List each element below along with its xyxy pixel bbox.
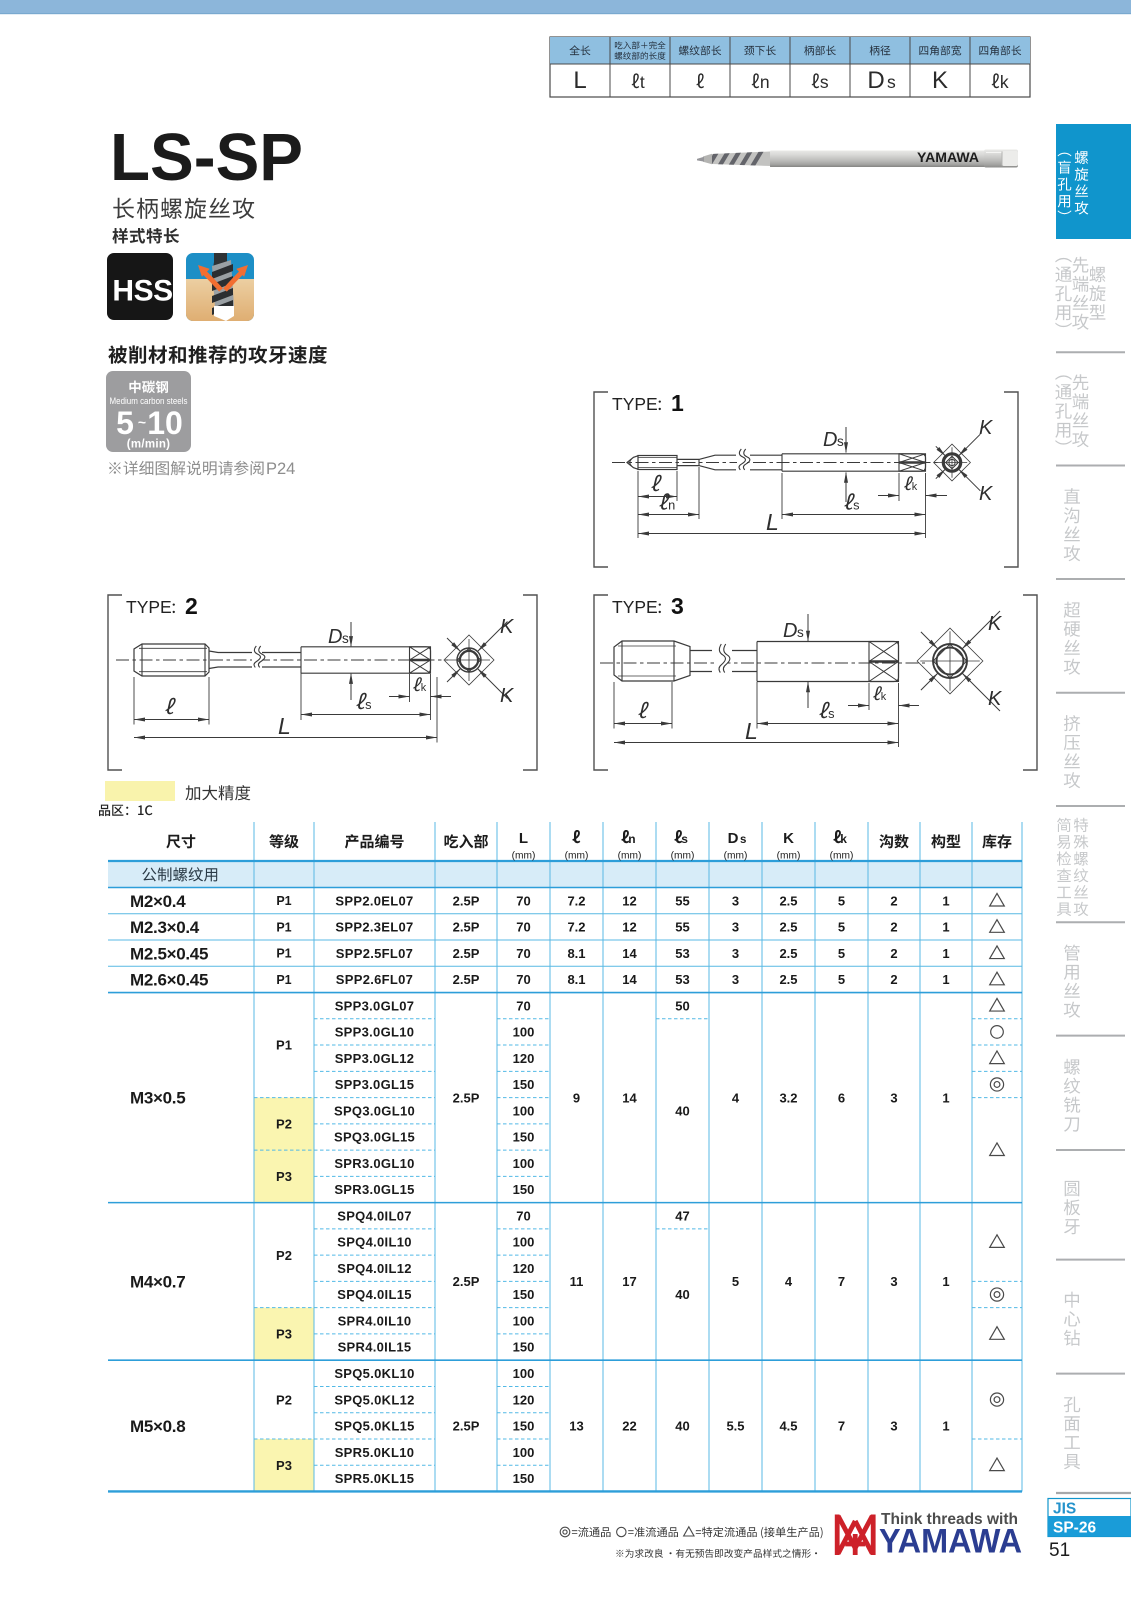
svg-text:SPP3.0GL07: SPP3.0GL07 [335, 998, 415, 1013]
svg-text:P1: P1 [276, 973, 291, 987]
svg-text:100: 100 [513, 1445, 535, 1460]
svg-text:12: 12 [622, 893, 636, 908]
svg-text:3: 3 [890, 1090, 897, 1105]
svg-text:5: 5 [838, 946, 845, 961]
svg-text:10: 10 [147, 405, 183, 441]
svg-text:s: s [820, 72, 829, 92]
svg-text:2.5: 2.5 [779, 972, 797, 987]
svg-text:HSS: HSS [112, 275, 172, 308]
svg-text:L: L [573, 67, 586, 94]
svg-text:9: 9 [573, 1090, 580, 1105]
svg-text:5: 5 [838, 893, 845, 908]
svg-text:5: 5 [116, 405, 134, 441]
svg-text:SPR3.0GL15: SPR3.0GL15 [334, 1182, 414, 1197]
svg-text:SPR3.0GL10: SPR3.0GL10 [334, 1156, 414, 1171]
svg-text:SPQ4.0IL07: SPQ4.0IL07 [337, 1208, 412, 1223]
svg-text:2: 2 [890, 946, 897, 961]
svg-text:K: K [988, 613, 1003, 635]
svg-text:70: 70 [516, 946, 530, 961]
svg-text:s: s [837, 434, 844, 449]
svg-text:~: ~ [138, 414, 146, 430]
svg-text:D: D [728, 830, 739, 847]
svg-text:K: K [932, 67, 948, 94]
svg-text:120: 120 [513, 1051, 535, 1066]
svg-text:2.5: 2.5 [779, 946, 797, 961]
svg-text:YAMAWA: YAMAWA [879, 1523, 1022, 1561]
svg-text:14: 14 [622, 946, 637, 961]
svg-text:17: 17 [622, 1274, 636, 1289]
svg-text:1: 1 [942, 1274, 949, 1289]
svg-text:K: K [783, 830, 794, 847]
svg-text:2.5P: 2.5P [453, 920, 480, 935]
svg-text:P1: P1 [276, 1038, 292, 1053]
svg-text:70: 70 [516, 1208, 530, 1223]
svg-text:150: 150 [513, 1340, 535, 1355]
svg-text:n: n [668, 498, 675, 513]
svg-text:2.5P: 2.5P [453, 1419, 480, 1434]
svg-text:2: 2 [890, 920, 897, 935]
svg-text:3: 3 [732, 893, 739, 908]
svg-text:2.5P: 2.5P [453, 946, 480, 961]
svg-text:P1: P1 [276, 920, 291, 934]
svg-text:P1: P1 [276, 947, 291, 961]
svg-text:2.5P: 2.5P [453, 893, 480, 908]
svg-text:3: 3 [732, 946, 739, 961]
svg-text:100: 100 [513, 1025, 535, 1040]
svg-text:100: 100 [513, 1103, 535, 1118]
svg-text:3.2: 3.2 [779, 1090, 797, 1105]
svg-text:4: 4 [785, 1274, 793, 1289]
svg-text:n: n [628, 832, 635, 846]
svg-text:M2.5×0.45: M2.5×0.45 [130, 944, 208, 963]
svg-text:2.5P: 2.5P [453, 1090, 480, 1105]
svg-text:TYPE: TYPE [612, 394, 658, 414]
svg-text:LS-SP: LS-SP [110, 120, 303, 195]
svg-text:4.5: 4.5 [779, 1419, 797, 1434]
svg-text:L: L [278, 713, 291, 739]
svg-text:53: 53 [675, 946, 689, 961]
svg-text:s: s [797, 625, 804, 640]
svg-text:SPQ4.0IL15: SPQ4.0IL15 [337, 1287, 412, 1302]
svg-text:120: 120 [513, 1392, 535, 1407]
svg-text:L: L [766, 509, 779, 535]
svg-text:P3: P3 [276, 1327, 292, 1342]
svg-text:(mm): (mm) [565, 851, 589, 862]
svg-text:P2: P2 [276, 1117, 292, 1132]
svg-text:SPR4.0IL15: SPR4.0IL15 [338, 1340, 412, 1355]
svg-text:M2.6×0.45: M2.6×0.45 [130, 971, 208, 990]
svg-text:70: 70 [516, 920, 530, 935]
svg-text:SPQ3.0GL15: SPQ3.0GL15 [334, 1130, 415, 1145]
svg-text:2: 2 [890, 972, 897, 987]
svg-text:s: s [740, 834, 746, 846]
svg-text:1: 1 [671, 390, 684, 416]
svg-text:2.5P: 2.5P [453, 1274, 480, 1289]
svg-text:2.5: 2.5 [779, 893, 797, 908]
svg-text:51: 51 [1049, 1540, 1070, 1561]
svg-text:K: K [979, 417, 994, 439]
svg-text:53: 53 [675, 972, 689, 987]
svg-text:(mm): (mm) [777, 851, 801, 862]
svg-text:L: L [519, 830, 528, 847]
svg-text:1: 1 [942, 893, 949, 908]
svg-text:47: 47 [675, 1208, 689, 1223]
svg-text:P24: P24 [266, 460, 295, 478]
svg-text:55: 55 [675, 920, 689, 935]
svg-text:n: n [760, 72, 770, 92]
svg-text:70: 70 [516, 972, 530, 987]
svg-text:K: K [988, 688, 1003, 710]
svg-text:SP-26: SP-26 [1053, 1520, 1096, 1537]
svg-text:100: 100 [513, 1366, 535, 1381]
svg-text:s: s [887, 72, 896, 92]
svg-text:150: 150 [513, 1182, 535, 1197]
svg-text:12: 12 [622, 920, 636, 935]
svg-text:TYPE: TYPE [612, 597, 658, 617]
svg-text:2.5: 2.5 [779, 920, 797, 935]
svg-text:s: s [853, 498, 859, 513]
svg-text:3: 3 [890, 1274, 897, 1289]
svg-text:7: 7 [838, 1419, 845, 1434]
svg-text:M2×0.4: M2×0.4 [130, 892, 186, 911]
svg-text:s: s [365, 697, 371, 712]
svg-text:SPR5.0KL10: SPR5.0KL10 [335, 1445, 415, 1460]
svg-text:M2.3×0.4: M2.3×0.4 [130, 918, 200, 937]
svg-text:120: 120 [513, 1261, 535, 1276]
svg-text:SPQ3.0GL10: SPQ3.0GL10 [334, 1103, 415, 1118]
svg-text:P3: P3 [276, 1458, 292, 1473]
svg-text:14: 14 [622, 972, 637, 987]
svg-text:7.2: 7.2 [567, 893, 585, 908]
svg-text:40: 40 [675, 1103, 689, 1118]
svg-text:(mm): (mm) [671, 851, 695, 862]
svg-text:1: 1 [942, 972, 949, 987]
svg-text:JIS: JIS [1053, 1501, 1076, 1518]
svg-text:50: 50 [675, 998, 689, 1013]
svg-text:100: 100 [513, 1156, 535, 1171]
svg-text:TYPE: TYPE [126, 597, 172, 617]
svg-text:SPQ5.0KL10: SPQ5.0KL10 [334, 1366, 414, 1381]
svg-text:13: 13 [569, 1419, 583, 1434]
svg-text:3: 3 [732, 972, 739, 987]
svg-text:k: k [421, 682, 427, 694]
svg-text:SPQ5.0KL12: SPQ5.0KL12 [334, 1392, 414, 1407]
svg-text:M5×0.8: M5×0.8 [130, 1417, 185, 1436]
svg-text:8.1: 8.1 [567, 946, 585, 961]
svg-text:K: K [500, 685, 515, 707]
svg-text:P2: P2 [276, 1392, 292, 1407]
svg-text:SPP3.0GL12: SPP3.0GL12 [335, 1051, 415, 1066]
svg-text:(mm): (mm) [618, 851, 642, 862]
svg-text:6: 6 [838, 1090, 845, 1105]
svg-text:7.2: 7.2 [567, 920, 585, 935]
svg-text:SPP2.6FL07: SPP2.6FL07 [336, 972, 413, 987]
svg-text:SPP2.0EL07: SPP2.0EL07 [335, 893, 413, 908]
svg-text:SPP3.0GL10: SPP3.0GL10 [335, 1025, 415, 1040]
svg-text:D: D [823, 429, 837, 451]
svg-text:2.5P: 2.5P [453, 972, 480, 987]
svg-text:3: 3 [671, 593, 684, 619]
svg-text:YAMAWA: YAMAWA [917, 150, 979, 165]
svg-text:5: 5 [838, 972, 845, 987]
svg-text:150: 150 [513, 1077, 535, 1092]
svg-text:k: k [912, 481, 918, 493]
svg-text:D: D [783, 620, 797, 642]
svg-text:(mm): (mm) [512, 851, 536, 862]
svg-text:1: 1 [942, 1419, 949, 1434]
svg-text:M3×0.5: M3×0.5 [130, 1089, 185, 1108]
svg-text:SPP2.5FL07: SPP2.5FL07 [336, 946, 413, 961]
svg-text:2: 2 [185, 593, 198, 619]
svg-text:40: 40 [675, 1419, 689, 1434]
svg-text:5.5: 5.5 [726, 1419, 744, 1434]
svg-text:22: 22 [622, 1419, 636, 1434]
svg-text:K: K [500, 616, 515, 638]
svg-text:1: 1 [942, 1090, 949, 1105]
svg-text:k: k [1000, 72, 1009, 92]
svg-text:P1: P1 [276, 894, 291, 908]
svg-text:40: 40 [675, 1287, 689, 1302]
svg-text:8.1: 8.1 [567, 972, 585, 987]
svg-text:(mm): (mm) [830, 851, 854, 862]
svg-text:P3: P3 [276, 1169, 292, 1184]
svg-text:14: 14 [622, 1090, 637, 1105]
svg-text:s: s [828, 706, 834, 721]
svg-text:5: 5 [732, 1274, 739, 1289]
svg-text:M4×0.7: M4×0.7 [130, 1273, 185, 1292]
svg-text:K: K [979, 483, 994, 505]
svg-text:4: 4 [732, 1090, 740, 1105]
svg-text:k: k [881, 691, 887, 703]
svg-text:SPR4.0IL10: SPR4.0IL10 [338, 1313, 412, 1328]
svg-text:3: 3 [732, 920, 739, 935]
svg-text:t: t [640, 72, 645, 92]
svg-text:1: 1 [942, 946, 949, 961]
svg-text:11: 11 [570, 1274, 584, 1289]
svg-text:SPR5.0KL15: SPR5.0KL15 [335, 1471, 415, 1486]
svg-text:(mm): (mm) [724, 851, 748, 862]
svg-text:100: 100 [513, 1313, 535, 1328]
svg-text:SPQ4.0IL12: SPQ4.0IL12 [337, 1261, 412, 1276]
svg-text:100: 100 [513, 1235, 535, 1250]
svg-text:k: k [840, 832, 847, 846]
svg-text:5: 5 [838, 920, 845, 935]
svg-text:150: 150 [513, 1471, 535, 1486]
svg-text:SPP3.0GL15: SPP3.0GL15 [335, 1077, 415, 1092]
svg-text:L: L [745, 718, 758, 744]
svg-text:55: 55 [675, 893, 689, 908]
svg-text:2: 2 [890, 893, 897, 908]
svg-text:D: D [328, 626, 342, 648]
svg-text:3: 3 [890, 1419, 897, 1434]
svg-text:SPQ4.0IL10: SPQ4.0IL10 [337, 1235, 412, 1250]
svg-text:(m/min): (m/min) [127, 439, 171, 451]
svg-text:SPQ5.0KL15: SPQ5.0KL15 [334, 1419, 414, 1434]
svg-text:1: 1 [942, 920, 949, 935]
svg-text:s: s [342, 631, 349, 646]
svg-text:150: 150 [513, 1419, 535, 1434]
svg-text:s: s [681, 832, 688, 846]
svg-text:7: 7 [838, 1274, 845, 1289]
svg-text:150: 150 [513, 1130, 535, 1145]
svg-text:SPP2.3EL07: SPP2.3EL07 [335, 920, 413, 935]
svg-text:70: 70 [516, 998, 530, 1013]
svg-text:150: 150 [513, 1287, 535, 1302]
svg-text:P2: P2 [276, 1248, 292, 1263]
svg-text:D: D [867, 67, 884, 94]
svg-text:70: 70 [516, 893, 530, 908]
